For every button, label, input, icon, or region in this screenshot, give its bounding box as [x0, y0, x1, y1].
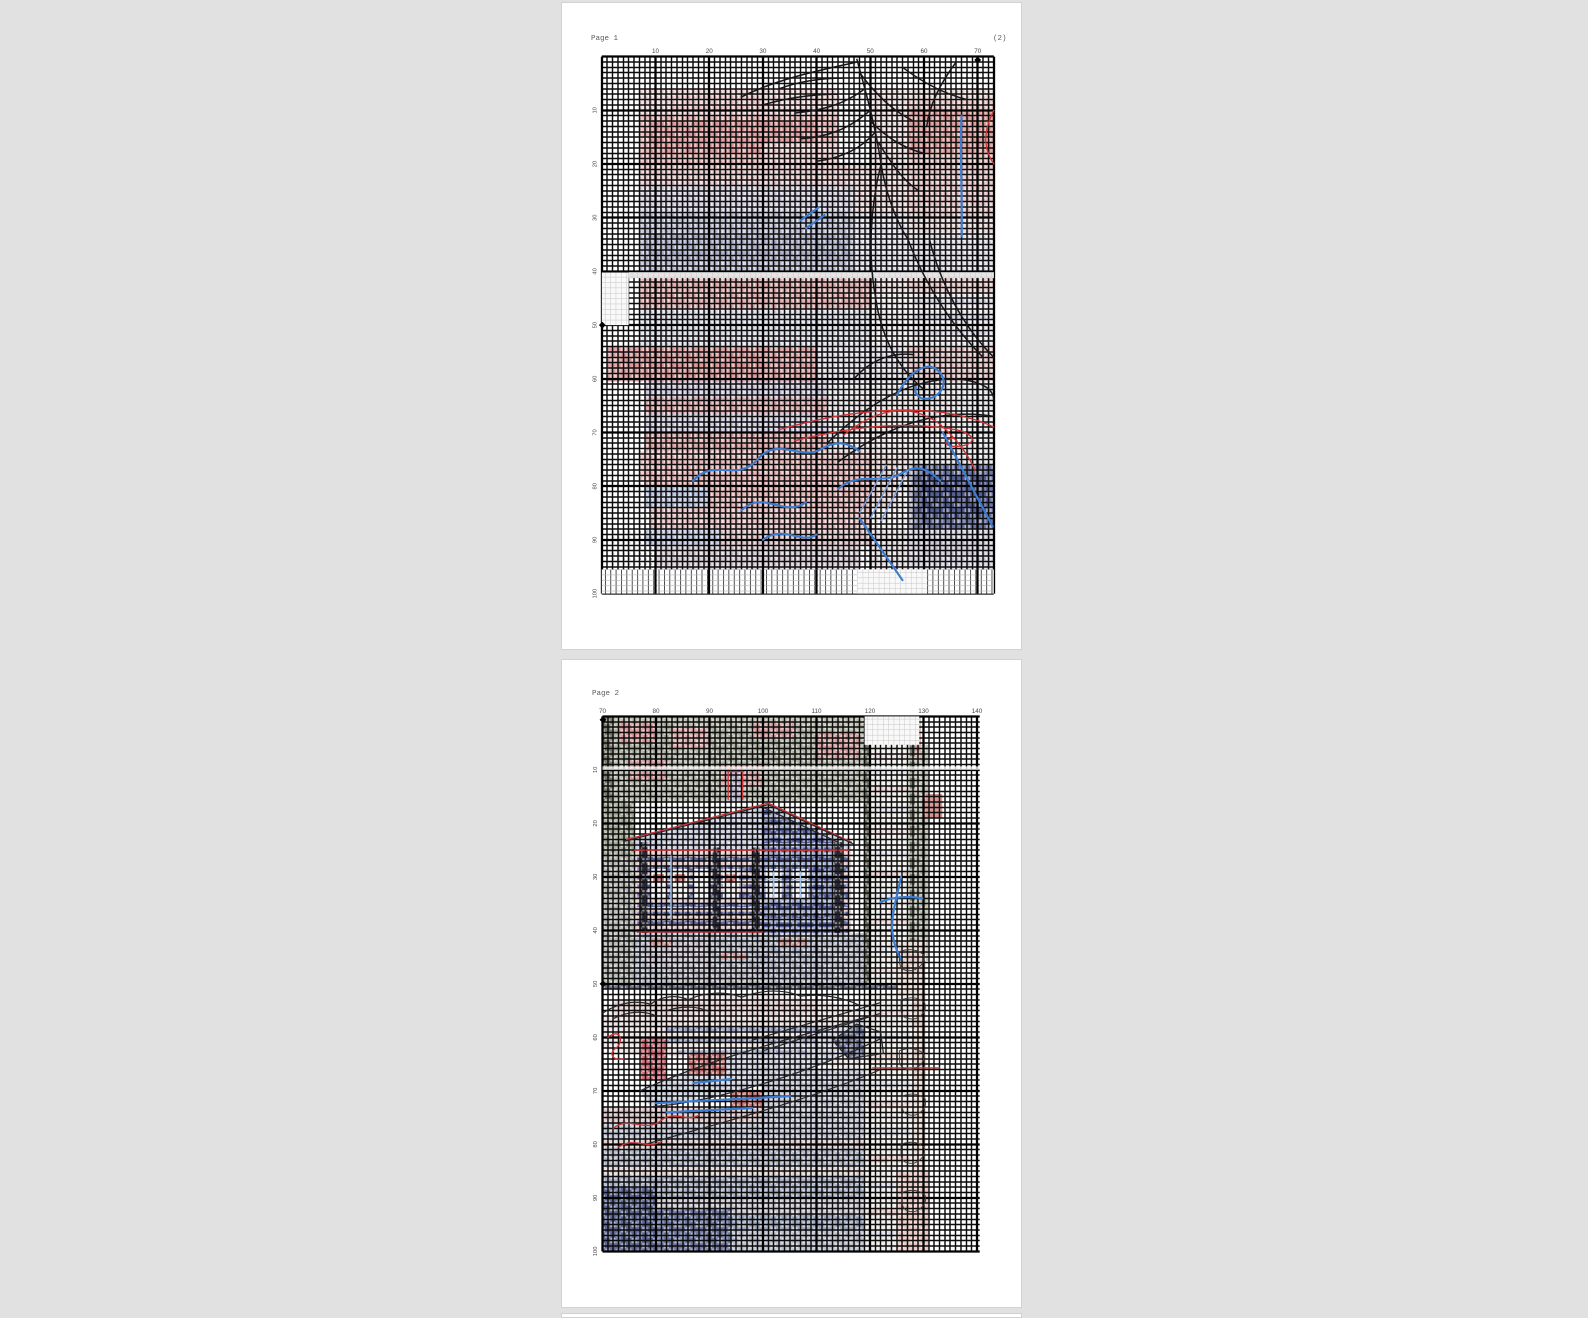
svg-text:50: 50 [592, 322, 598, 328]
svg-text:Page 1: Page 1 [591, 35, 619, 43]
svg-text:40: 40 [593, 927, 599, 933]
svg-text:40: 40 [592, 268, 598, 274]
svg-text:100: 100 [593, 1247, 599, 1257]
svg-text:30: 30 [592, 214, 598, 220]
svg-text:70: 70 [592, 429, 598, 435]
svg-text:20: 20 [706, 48, 714, 55]
svg-text:30: 30 [593, 874, 599, 880]
svg-text:10: 10 [593, 767, 599, 773]
svg-text:100: 100 [758, 708, 769, 715]
svg-text:60: 60 [593, 1034, 599, 1040]
svg-text:30: 30 [759, 48, 767, 55]
svg-text:90: 90 [592, 537, 598, 543]
svg-text:20: 20 [593, 820, 599, 826]
svg-text:90: 90 [593, 1195, 599, 1201]
svg-text:(2): (2) [993, 35, 1007, 43]
svg-text:70: 70 [599, 708, 607, 715]
svg-text:80: 80 [593, 1141, 599, 1147]
svg-text:70: 70 [974, 48, 982, 55]
svg-text:60: 60 [592, 376, 598, 382]
svg-text:110: 110 [811, 708, 822, 715]
svg-text:10: 10 [652, 48, 660, 55]
svg-text:80: 80 [652, 708, 660, 715]
svg-text:70: 70 [593, 1088, 599, 1094]
svg-text:10: 10 [592, 107, 598, 113]
svg-text:Page 2: Page 2 [592, 690, 619, 698]
svg-text:50: 50 [867, 48, 875, 55]
svg-text:130: 130 [918, 708, 929, 715]
svg-text:80: 80 [592, 483, 598, 489]
svg-text:90: 90 [706, 708, 714, 715]
svg-text:50: 50 [593, 981, 599, 987]
svg-text:120: 120 [865, 708, 876, 715]
svg-text:60: 60 [920, 48, 928, 55]
svg-text:20: 20 [592, 161, 598, 167]
svg-text:140: 140 [972, 708, 983, 715]
svg-text:40: 40 [813, 48, 821, 55]
svg-text:100: 100 [592, 589, 598, 599]
